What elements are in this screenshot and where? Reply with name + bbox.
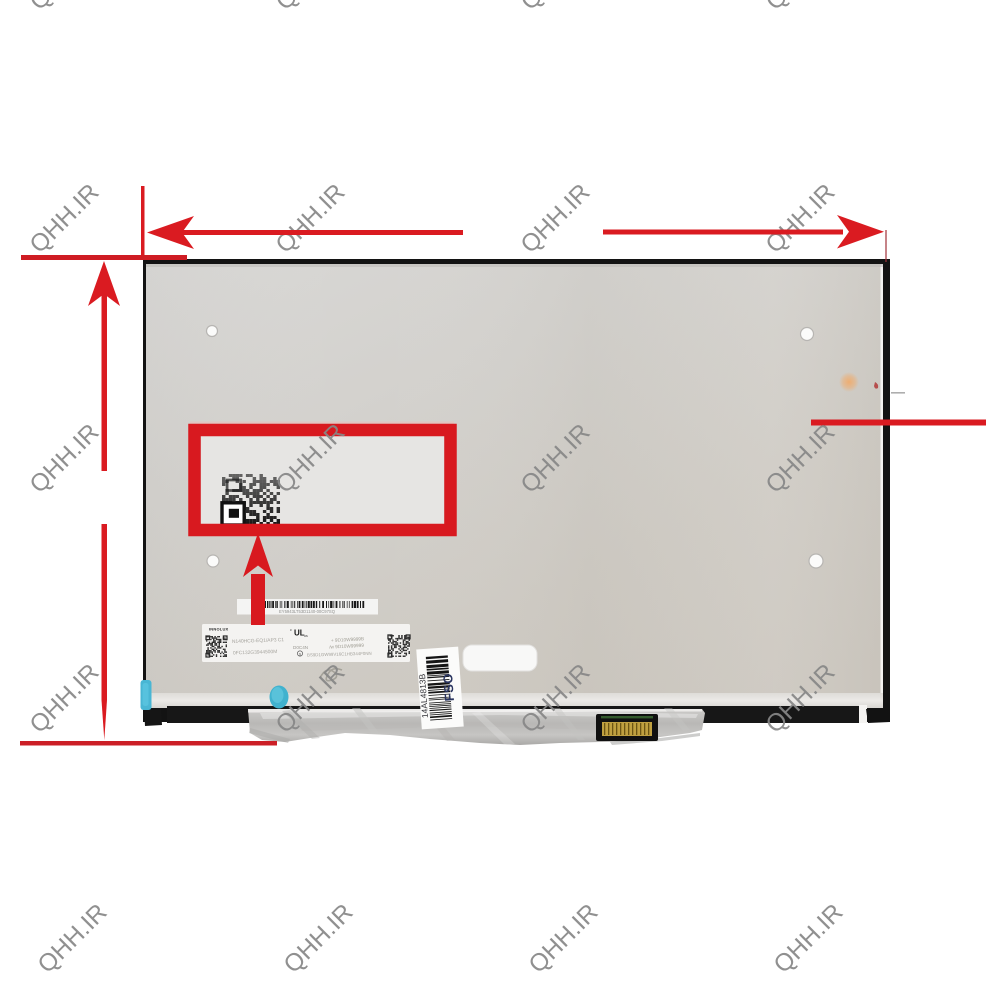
svg-text:S: S bbox=[299, 651, 302, 656]
svg-text:D0C4N: D0C4N bbox=[293, 645, 308, 650]
svg-text:FSO: FSO bbox=[440, 673, 457, 702]
svg-text:EY5943LT53D1140-00C97SQ: EY5943LT53D1140-00C97SQ bbox=[279, 609, 336, 614]
svg-text:c: c bbox=[290, 628, 292, 632]
svg-text:INNOLUX: INNOLUX bbox=[209, 627, 229, 632]
svg-text:us: us bbox=[304, 634, 308, 638]
